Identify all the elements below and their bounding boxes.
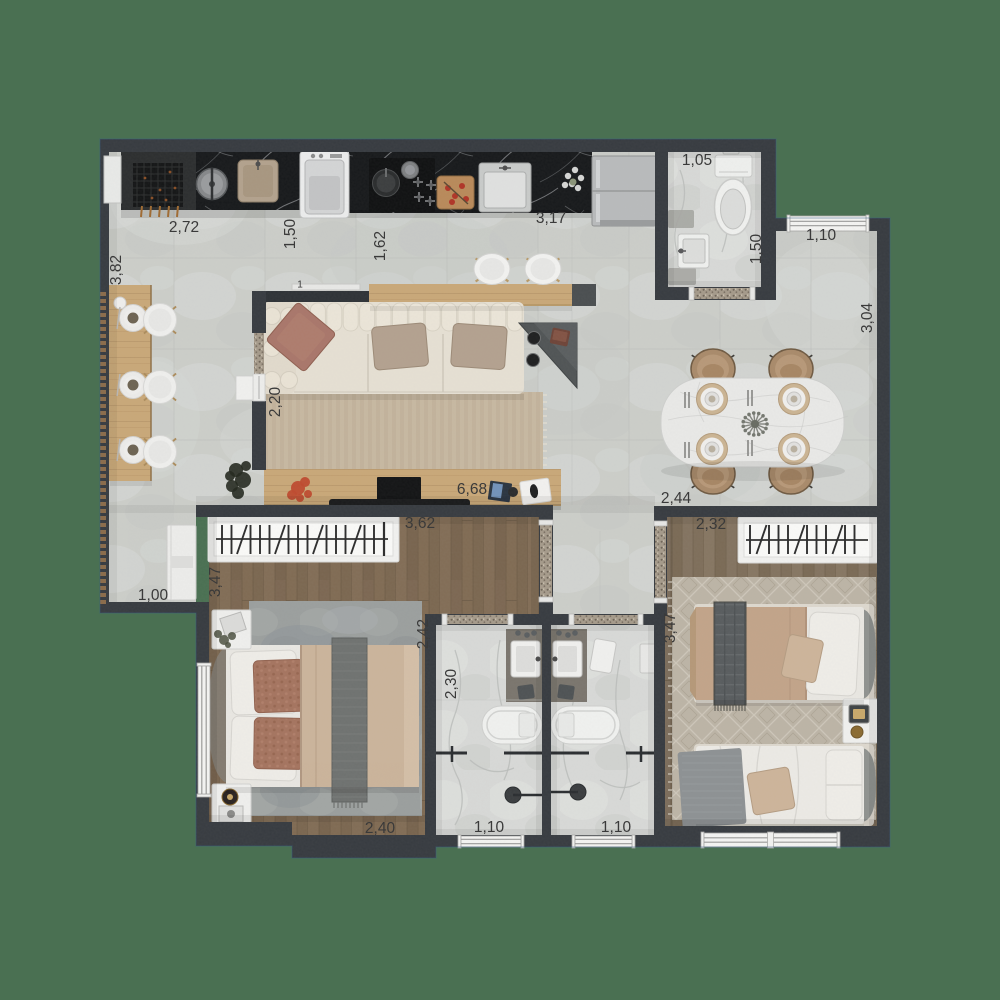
svg-text:1,00: 1,00: [138, 587, 169, 604]
svg-text:1,10: 1,10: [474, 819, 505, 836]
svg-text:3,17: 3,17: [536, 210, 566, 227]
svg-text:3,62: 3,62: [405, 515, 435, 532]
svg-text:1,05: 1,05: [682, 152, 712, 169]
svg-text:2,20: 2,20: [267, 387, 284, 418]
svg-text:2,32: 2,32: [696, 516, 726, 533]
svg-text:2,44: 2,44: [661, 490, 692, 507]
svg-text:3,82: 3,82: [108, 255, 125, 285]
svg-text:6,68: 6,68: [457, 481, 487, 498]
svg-text:2,30: 2,30: [443, 669, 460, 700]
svg-text:2,72: 2,72: [169, 219, 199, 236]
svg-text:3,04: 3,04: [859, 303, 876, 334]
svg-text:1,50: 1,50: [282, 219, 299, 250]
svg-text:2,40: 2,40: [365, 820, 396, 837]
svg-text:1: 1: [297, 280, 303, 291]
svg-text:2,42: 2,42: [415, 619, 432, 649]
svg-text:1,10: 1,10: [806, 227, 837, 244]
svg-text:3,47: 3,47: [662, 613, 679, 643]
svg-text:1,50: 1,50: [748, 234, 765, 265]
svg-text:1,62: 1,62: [372, 231, 389, 261]
svg-text:1,10: 1,10: [601, 819, 632, 836]
svg-text:3,47: 3,47: [207, 567, 224, 597]
